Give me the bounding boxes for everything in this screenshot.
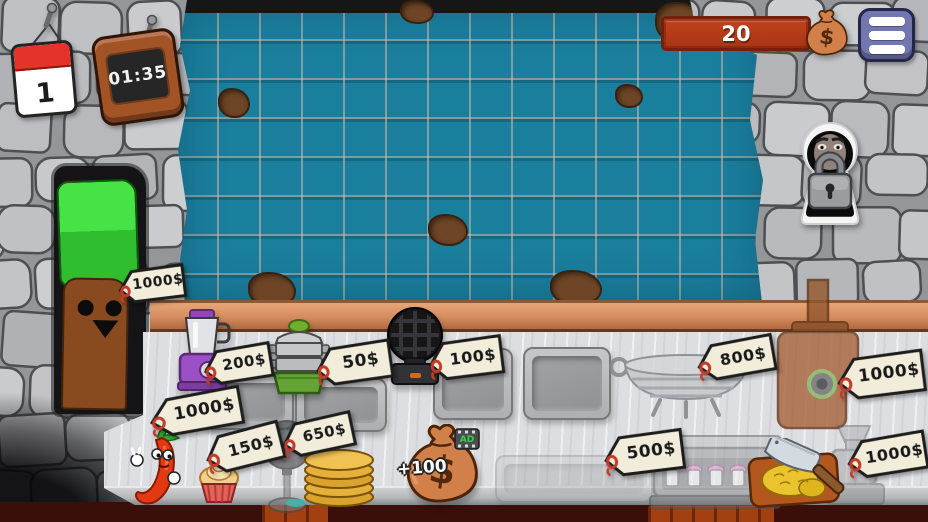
calendar-header	[13, 43, 71, 72]
day-number: 1	[15, 69, 75, 118]
svg-text:AD: AD	[460, 435, 474, 445]
price-tag-label: 50$	[329, 338, 393, 385]
menu-button[interactable]	[858, 8, 915, 62]
juicer[interactable]	[772, 278, 866, 430]
price-tag-label: 1000$	[852, 348, 925, 399]
hamburger-icon	[869, 17, 905, 26]
hamburger-icon	[869, 45, 905, 54]
money-bag-icon: $	[800, 6, 850, 60]
broken-tile	[218, 88, 250, 118]
hamburger-icon	[869, 31, 905, 40]
price-tag-label: 500$	[618, 427, 685, 475]
game-screen: $ +100 AD	[0, 0, 928, 522]
broken-tile	[400, 0, 434, 24]
day-calendar: 1	[10, 39, 78, 118]
money-progress-bar: 20	[661, 16, 811, 51]
ad-video-icon: AD	[454, 428, 480, 450]
price-tag-label: 1000$	[130, 263, 185, 303]
price-tag-label: 100$	[442, 334, 504, 380]
mascot-mouth	[92, 320, 118, 338]
timer-value: 01:35	[105, 46, 172, 106]
money-value: 20	[721, 22, 750, 46]
locked-keyhole-sticker	[792, 120, 868, 232]
ad-bonus-amount: +100	[396, 456, 447, 479]
broken-tile	[615, 84, 643, 108]
mascot-eye	[77, 300, 93, 316]
countdown-timer: 01:35	[90, 27, 186, 128]
broken-tile	[428, 214, 468, 246]
counter-tray[interactable]	[523, 347, 611, 420]
